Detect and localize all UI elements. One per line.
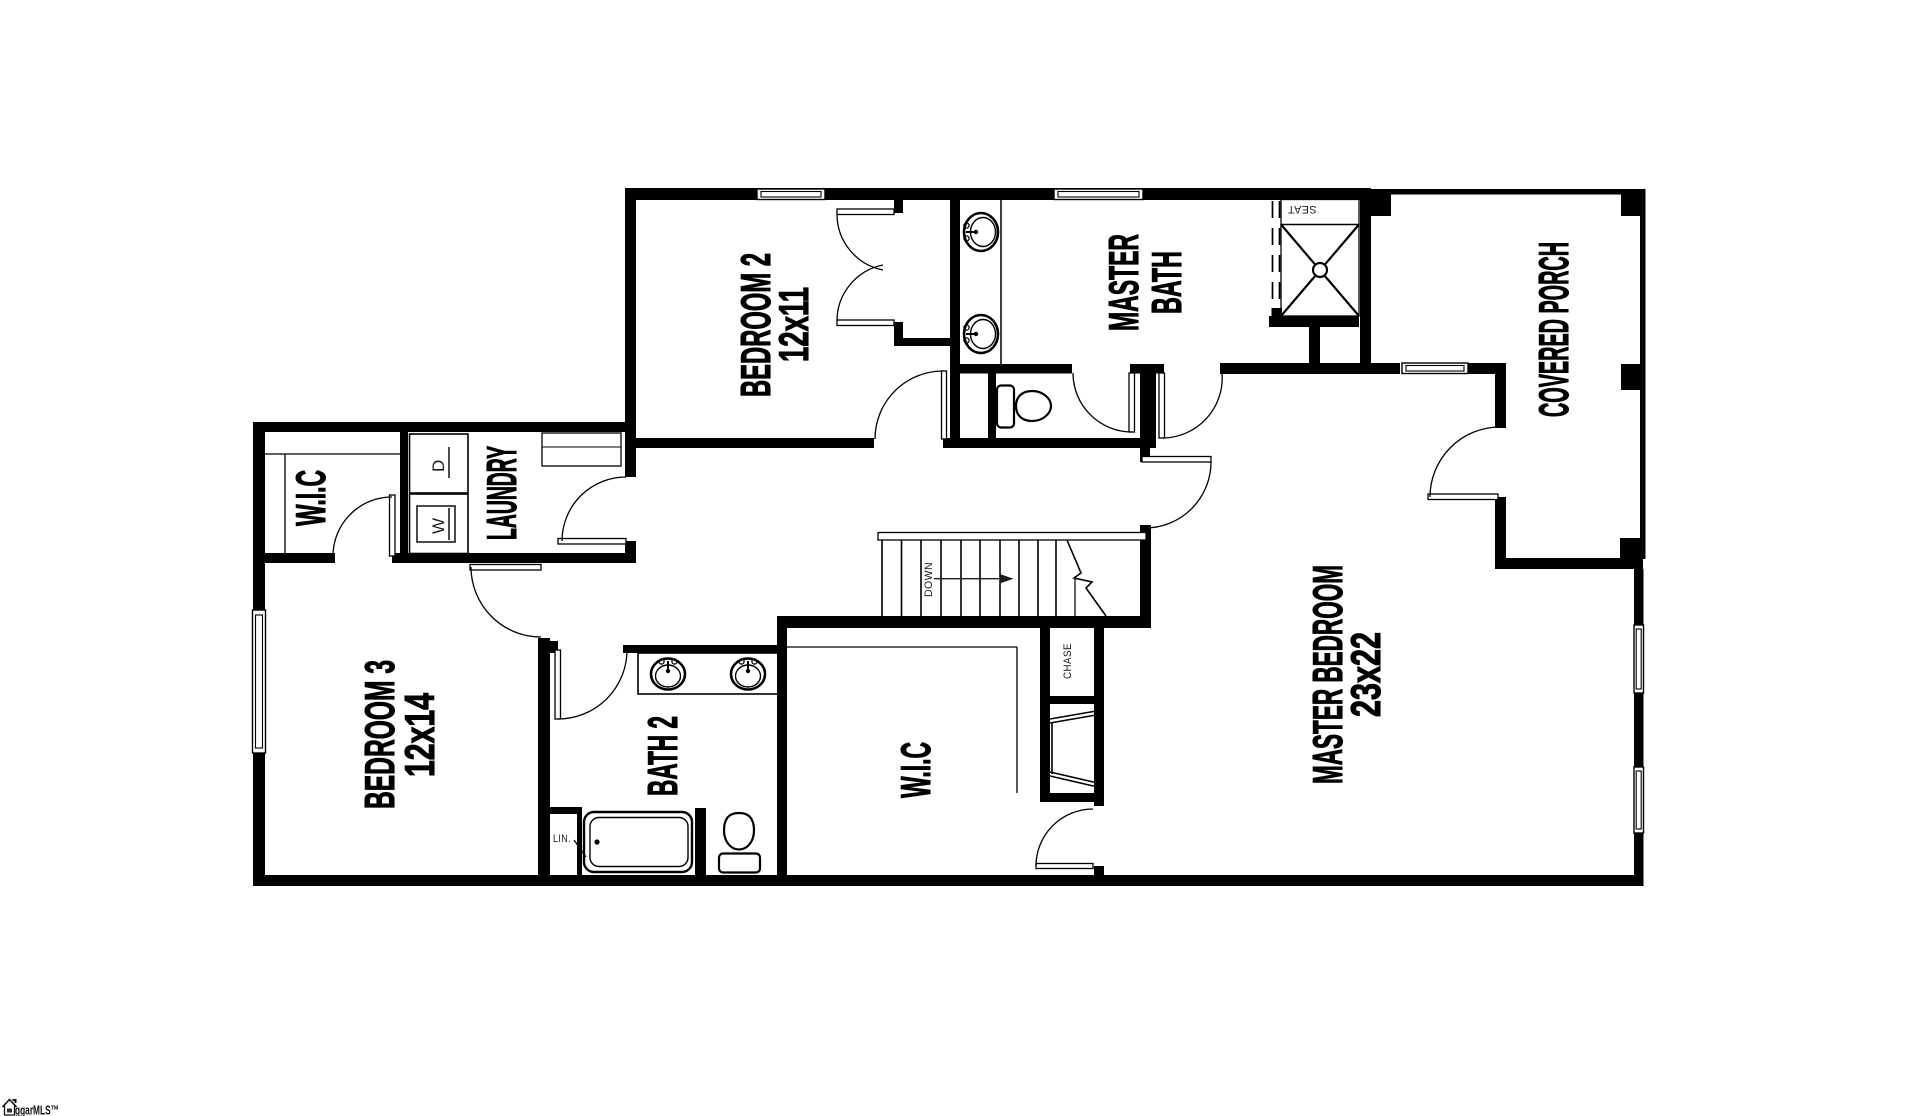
svg-text:ggarMLS™: ggarMLS™ xyxy=(15,1103,59,1116)
svg-text:CHASE: CHASE xyxy=(1062,643,1074,679)
svg-text:SEAT: SEAT xyxy=(1288,203,1317,215)
svg-text:MASTER: MASTER xyxy=(1100,234,1147,331)
svg-text:DOWN: DOWN xyxy=(923,562,935,597)
svg-text:D: D xyxy=(429,460,448,472)
svg-text:12x14: 12x14 xyxy=(396,693,443,777)
svg-text:LIN.: LIN. xyxy=(553,833,571,845)
svg-text:W.I.C: W.I.C xyxy=(287,470,334,526)
svg-text:BATH 2: BATH 2 xyxy=(639,716,686,796)
svg-text:12x11: 12x11 xyxy=(770,287,817,362)
svg-text:BATH: BATH xyxy=(1143,251,1190,314)
svg-text:23x22: 23x22 xyxy=(1342,632,1389,717)
svg-text:W.I.C: W.I.C xyxy=(892,742,939,798)
svg-text:W: W xyxy=(429,518,448,534)
svg-text:LAUNDRY: LAUNDRY xyxy=(478,446,525,540)
svg-text:COVERED PORCH: COVERED PORCH xyxy=(1530,242,1577,417)
